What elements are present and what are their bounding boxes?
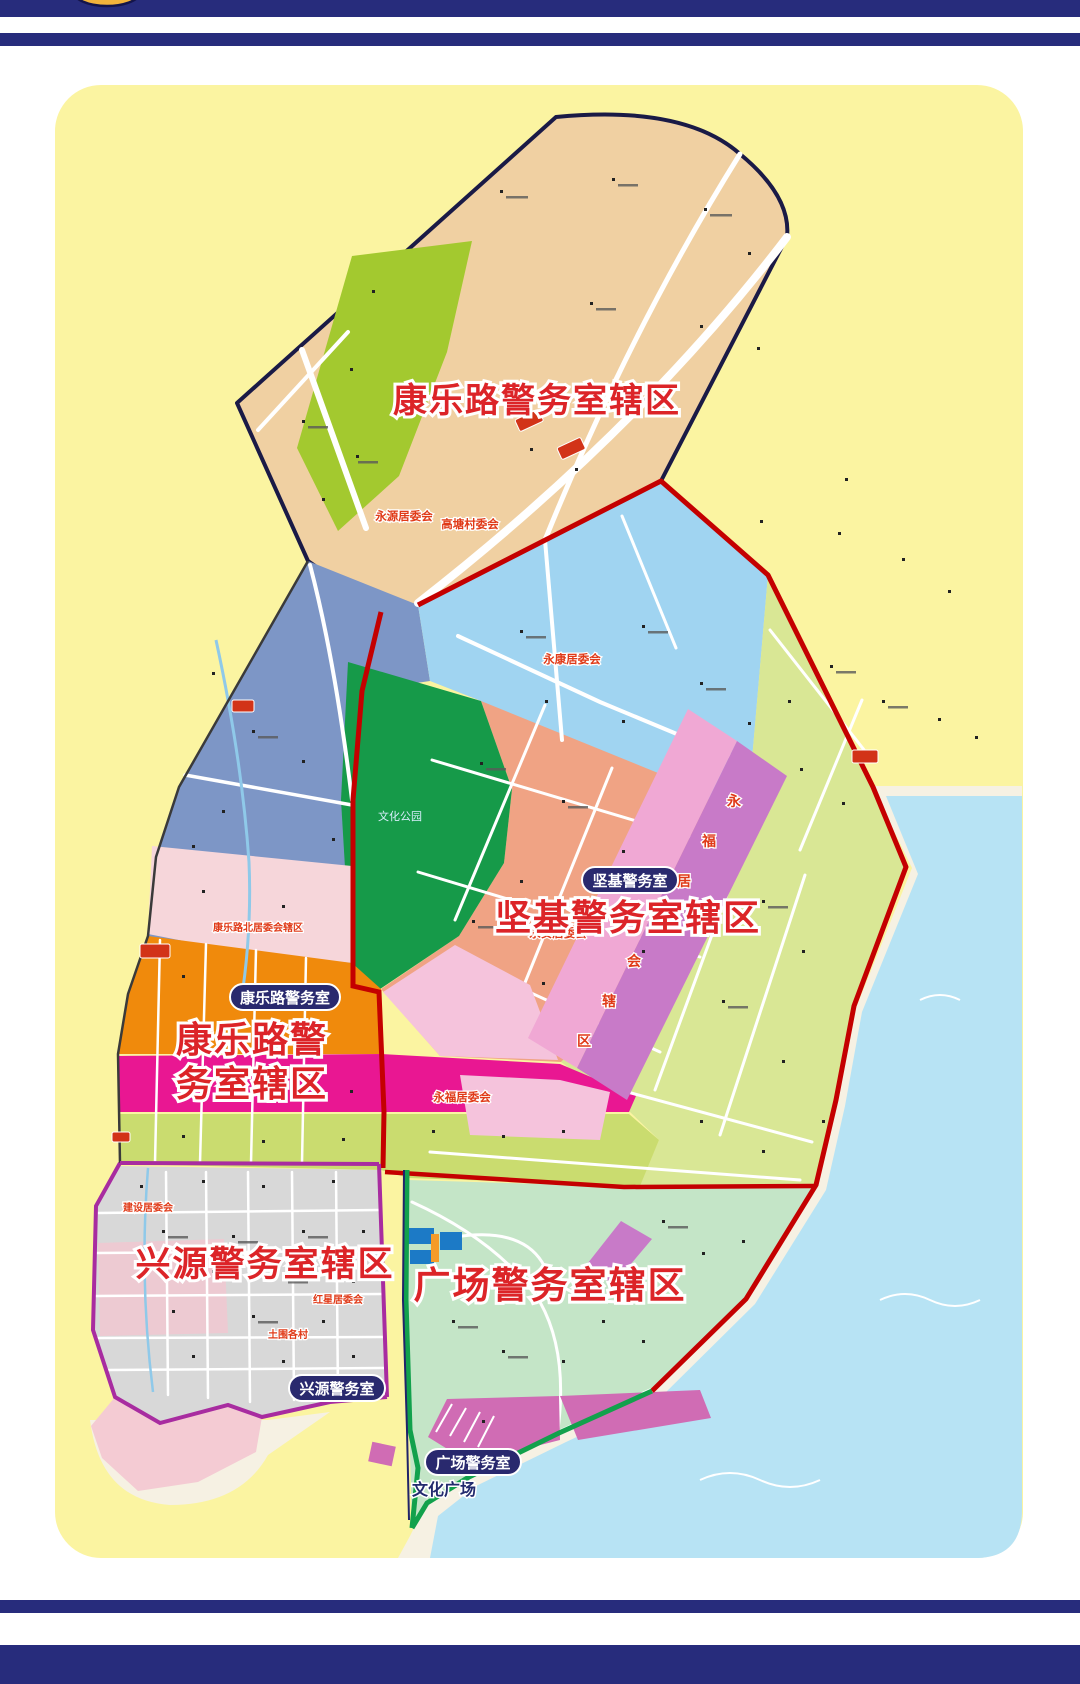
label-culture-park: 文化公园 <box>378 809 422 823</box>
svg-text:区: 区 <box>577 1034 591 1050</box>
region-title-kanglelu-north: 康乐路警务室辖区 <box>393 381 681 421</box>
label-yongfu: 永福居委会 <box>432 1090 491 1104</box>
police-district-map-poster: 永源居委会 高塘村委会 永康居委会 康乐路北居委会辖区 永安居委会 永福居委会 … <box>0 0 1080 1684</box>
region-title-guangchang: 广场警务室辖区 <box>414 1264 687 1307</box>
top-navy-stripe <box>0 33 1080 46</box>
svg-text:居: 居 <box>677 874 691 890</box>
label-gaotang: 高塘村委会 <box>441 517 499 531</box>
region-title-xingyuan: 兴源警务室辖区 <box>135 1244 394 1285</box>
region-title-kanglelu-south-line2: 务室辖区 <box>176 1064 328 1105</box>
region-title-jianji: 坚基警务室辖区 <box>495 898 761 939</box>
svg-text:会: 会 <box>627 953 642 970</box>
svg-text:福: 福 <box>701 833 716 850</box>
label-culture-square: 文化广场 <box>412 1480 476 1499</box>
bottom-navy-stripe <box>0 1600 1080 1613</box>
badge-jianji-station: 坚基警务室 <box>582 867 678 893</box>
badge-xingyuan-station: 兴源警务室 <box>289 1375 385 1401</box>
svg-text:坚基警务室: 坚基警务室 <box>592 872 667 890</box>
svg-text:广场警务室: 广场警务室 <box>435 1454 510 1472</box>
svg-text:康乐路警务室: 康乐路警务室 <box>240 989 330 1007</box>
label-hongxing: 红星居委会 <box>313 1293 363 1306</box>
top-navy-band <box>0 0 1080 17</box>
label-tuwei: 土围各村 <box>268 1328 308 1341</box>
svg-text:兴源警务室: 兴源警务室 <box>299 1380 374 1398</box>
bottom-navy-band <box>0 1645 1080 1684</box>
label-yongkang: 永康居委会 <box>542 652 601 666</box>
badge-guangchang-station: 广场警务室 <box>425 1449 521 1475</box>
map-canvas: 永源居委会 高塘村委会 永康居委会 康乐路北居委会辖区 永安居委会 永福居委会 … <box>0 0 1080 1684</box>
region-title-kanglelu-south-line1: 康乐路警 <box>176 1019 328 1061</box>
label-yongyuan: 永源居委会 <box>374 509 433 523</box>
svg-text:辖: 辖 <box>602 993 616 1010</box>
label-kanglelu-north-committee: 康乐路北居委会辖区 <box>213 921 303 934</box>
badge-kanglelu-station: 康乐路警务室 <box>230 984 340 1010</box>
svg-text:永: 永 <box>726 793 742 810</box>
label-jianshe: 建设居委会 <box>122 1201 173 1214</box>
